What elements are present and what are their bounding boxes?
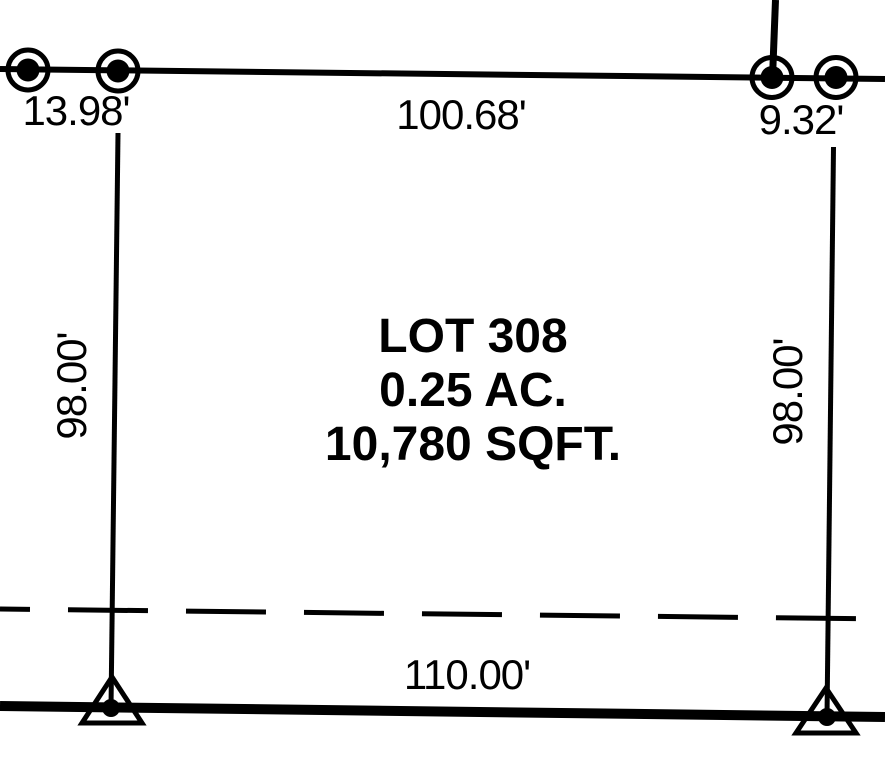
- dimension-left-depth: 98.00': [51, 332, 93, 439]
- plat-drawing: 13.98' 100.68' 9.32' 98.00' 98.00' 110.0…: [0, 0, 885, 768]
- west-lot-line: [111, 133, 118, 708]
- lot-square-feet: 10,780 SQFT.: [325, 418, 621, 472]
- setback-dashed-line: [0, 609, 885, 619]
- dimension-top-left-offset: 13.98': [22, 90, 129, 132]
- lot-number: LOT 308: [325, 310, 621, 364]
- east-lot-line: [827, 147, 834, 717]
- dimension-top-frontage: 100.68': [396, 94, 525, 136]
- lot-acreage: 0.25 AC.: [325, 364, 621, 418]
- dimension-bottom-width: 110.00': [404, 654, 530, 696]
- lot-info-block: LOT 308 0.25 AC. 10,780 SQFT.: [325, 310, 621, 472]
- dimension-top-right-offset: 9.32': [759, 99, 844, 141]
- dimension-right-depth: 98.00': [767, 338, 809, 445]
